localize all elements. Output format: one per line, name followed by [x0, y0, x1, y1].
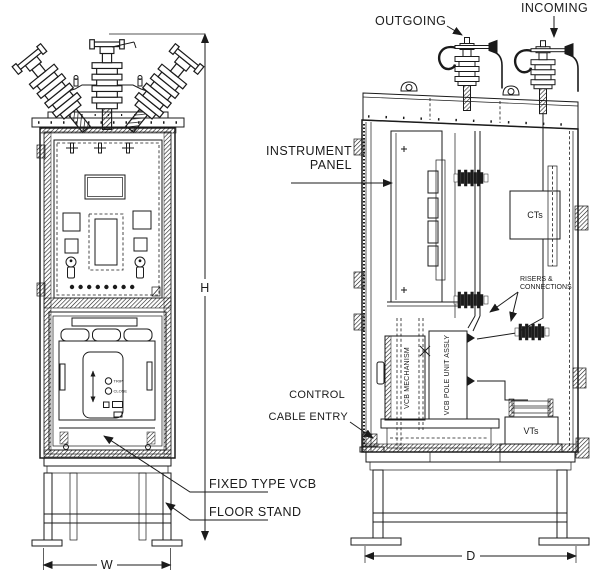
instrument-panel-callout: INSTRUMENT PANEL [266, 144, 392, 183]
vcb-pole-unit-box: VCB POLE UNIT ASSLY [429, 331, 475, 419]
trip-button [105, 378, 111, 384]
control-cable-entry-label-2: CABLE ENTRY [268, 411, 348, 423]
bushing-bottom-studs [66, 143, 134, 153]
switch-right [134, 238, 147, 251]
vcb-pole-bump-1 [61, 329, 89, 341]
mimic-inner [95, 219, 117, 265]
vcb-pole-unit-label: VCB POLE UNIT ASSLY [444, 335, 451, 416]
front-callouts: FIXED TYPE VCB FLOOR STAND [104, 436, 316, 520]
key-switch-right [135, 257, 145, 278]
indicator-lamps [70, 285, 135, 289]
vcb-mechanism-label: VCB MECHANISM [404, 347, 411, 409]
lifting-lug-right [503, 86, 519, 95]
standoff-insulator-mid [454, 292, 488, 308]
fixed-type-vcb-label: FIXED TYPE VCB [209, 477, 316, 491]
vcb-outline-drawing: H [0, 0, 600, 575]
nameplate-small [113, 402, 123, 408]
cts-label: CTs [527, 210, 543, 220]
display-window [85, 175, 125, 199]
dim-depth-label: D [466, 549, 475, 563]
relay-2 [428, 198, 438, 218]
drawing-canvas: H [0, 0, 600, 575]
instrument-panel-side [387, 131, 458, 306]
panel-bolts [401, 146, 407, 293]
front-floor-stand [32, 458, 182, 546]
instrument-panel-door [54, 140, 162, 298]
meter-left [63, 213, 80, 231]
side-hinge-2 [354, 272, 364, 288]
risers-label-2: CONNECTIONS [520, 284, 572, 291]
right-hinge-2 [573, 368, 586, 388]
incoming-label: INCOMING [521, 1, 588, 15]
vcb-mechanism-box: VCB MECHANISM [377, 318, 430, 450]
control-cable-entry-label-1: CONTROL [289, 389, 345, 401]
depth-dimension: D [365, 546, 576, 563]
vts-label: VTs [523, 426, 539, 436]
vcb-front-panel [83, 352, 123, 418]
outgoing-label: OUTGOING [375, 14, 446, 28]
vent-slot [72, 318, 137, 326]
counter [104, 402, 110, 408]
incoming-bushing [515, 41, 578, 114]
side-hinge-3 [354, 314, 364, 330]
key-switch-left [66, 257, 76, 278]
front-view: H [12, 34, 316, 572]
front-door-hinge-top [37, 145, 45, 158]
risers-callout: RISERS & CONNECTIONS [490, 276, 572, 321]
close-button [105, 388, 111, 394]
dim-height-label: H [200, 281, 209, 295]
vt-fuse-bar-2 [512, 408, 550, 413]
floor-stand-label: FLOOR STAND [209, 505, 301, 519]
standoff-insulator-lower [515, 324, 549, 340]
vcb-pole-bump-3 [124, 329, 152, 341]
right-hinge-3 [576, 438, 589, 458]
outgoing-arrow [447, 26, 462, 35]
mimic-frame [89, 214, 123, 270]
vcb-compartment: TRIP CLOSE [49, 312, 166, 450]
risers-and-connections [454, 114, 557, 400]
instrument-panel-label-2: PANEL [310, 158, 352, 172]
right-hinge-1 [575, 206, 588, 230]
vts-assembly: VTs [500, 399, 562, 452]
mechanism-handle [377, 362, 384, 384]
outgoing-bushing [439, 38, 502, 111]
vt-fuse-bar-1 [512, 401, 550, 406]
relay-3 [428, 221, 438, 243]
control-cable-entry-callout: CONTROL CABLE ENTRY [268, 389, 373, 438]
dim-width-label: W [101, 558, 113, 572]
close-label: CLOSE [114, 389, 128, 394]
vcb-pole-bump-2 [93, 329, 121, 341]
risers-label-1: RISERS & [520, 276, 553, 283]
width-dimension: W [44, 548, 171, 572]
vcb-body [59, 341, 155, 420]
side-hinge-1 [354, 139, 364, 155]
lifting-lug-left [401, 82, 417, 91]
side-floor-stand [351, 452, 589, 545]
relay-1 [428, 171, 438, 193]
switch-left [65, 239, 78, 253]
instrument-panel-label-1: INSTRUMENT [266, 144, 352, 158]
meter-right [133, 211, 151, 229]
relay-4 [428, 246, 438, 266]
trip-label: TRIP [114, 379, 123, 384]
front-door-hinge-bottom [37, 283, 45, 296]
standoff-insulator-upper [454, 170, 488, 186]
